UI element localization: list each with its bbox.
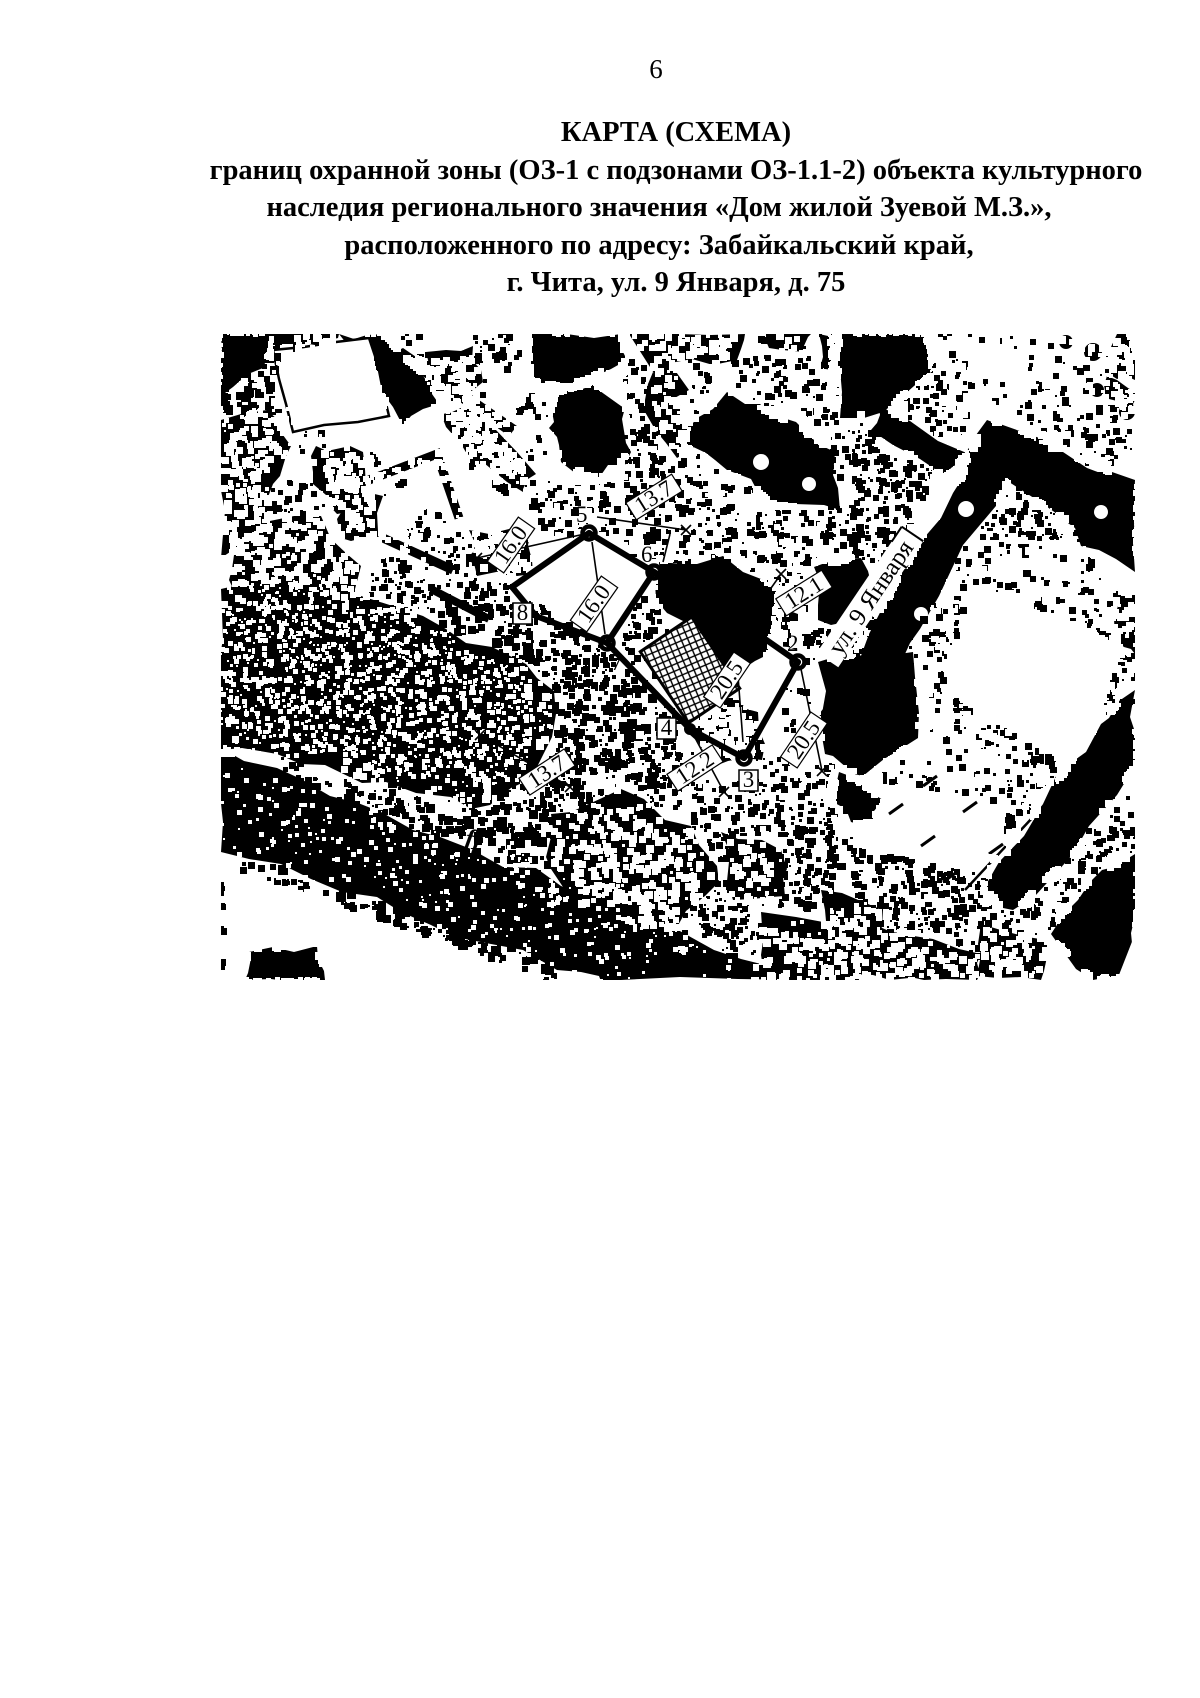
svg-text:1: 1: [729, 600, 741, 625]
svg-text:5: 5: [576, 502, 588, 527]
svg-text:8: 8: [517, 600, 529, 625]
svg-text:3: 3: [743, 767, 755, 792]
svg-text:7: 7: [611, 650, 623, 675]
svg-text:4: 4: [661, 715, 673, 740]
svg-text:6: 6: [641, 542, 653, 567]
svg-text:2: 2: [787, 631, 799, 656]
